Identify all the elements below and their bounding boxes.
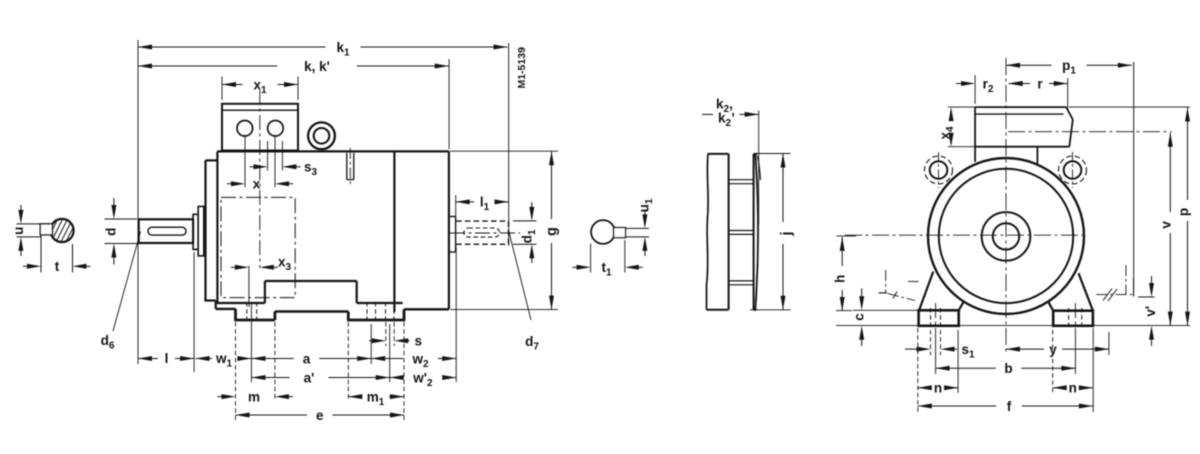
svg-text:M1-5139: M1-5139 (516, 47, 528, 89)
svg-text:e: e (316, 408, 324, 423)
svg-text:x4: x4 (938, 126, 957, 140)
svg-text:m1: m1 (367, 390, 385, 409)
svg-text:r: r (1037, 76, 1043, 91)
svg-text:k1: k1 (336, 40, 350, 59)
svg-text:d6: d6 (101, 333, 115, 352)
svg-text:s: s (415, 334, 423, 349)
svg-text:v: v (1159, 221, 1174, 229)
svg-text:t1: t1 (601, 260, 612, 279)
svg-text:l: l (165, 351, 169, 366)
svg-text:w2: w2 (411, 351, 429, 370)
svg-text:x1: x1 (253, 77, 267, 96)
svg-text:m: m (248, 390, 260, 405)
svg-text:b: b (1004, 361, 1012, 376)
svg-text:a': a' (304, 370, 315, 385)
svg-text:f: f (1007, 399, 1012, 414)
svg-text:w1: w1 (215, 351, 233, 370)
svg-text:d1: d1 (520, 229, 539, 243)
svg-text:d7: d7 (525, 334, 539, 353)
svg-text:s1: s1 (962, 342, 976, 361)
svg-text:y: y (1049, 342, 1057, 357)
svg-text:j: j (779, 231, 795, 236)
svg-text:x3: x3 (278, 255, 292, 274)
svg-text:u: u (11, 227, 26, 235)
svg-text:x: x (253, 177, 261, 192)
svg-text:n: n (934, 381, 942, 396)
svg-text:d: d (104, 228, 119, 236)
svg-text:u1: u1 (637, 198, 656, 212)
svg-text:t: t (55, 259, 60, 274)
svg-text:p: p (1176, 208, 1191, 216)
svg-text:l1: l1 (480, 195, 490, 214)
svg-text:r2: r2 (983, 76, 994, 95)
svg-text:s3: s3 (304, 160, 318, 179)
svg-text:k, k': k, k' (304, 59, 330, 74)
svg-text:p1: p1 (1062, 58, 1076, 77)
svg-text:w'2: w'2 (412, 370, 433, 389)
svg-text:a: a (303, 351, 311, 366)
svg-text:h: h (833, 275, 848, 283)
svg-text:g: g (544, 227, 560, 236)
svg-text:n: n (1069, 381, 1077, 396)
svg-text:c: c (852, 313, 867, 321)
svg-text:v': v' (1143, 306, 1158, 317)
